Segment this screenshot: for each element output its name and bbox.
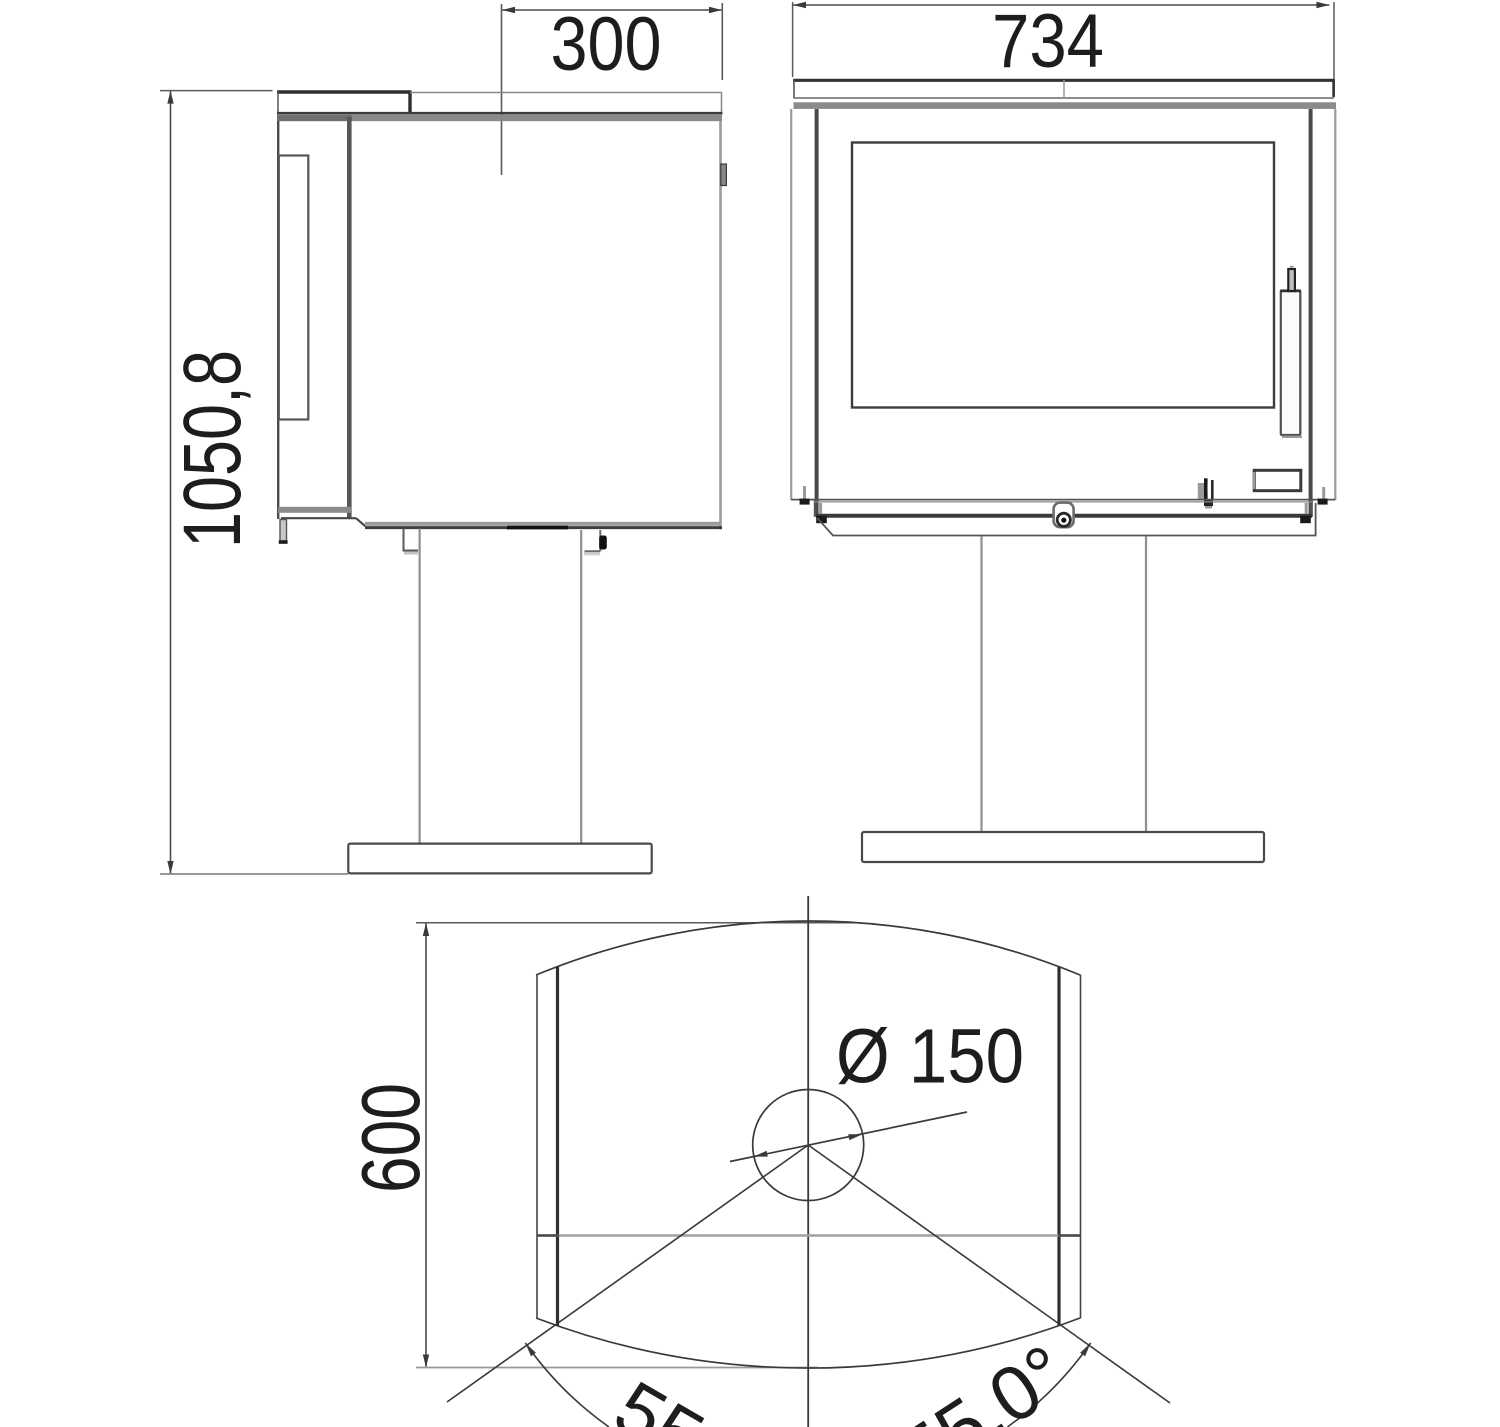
svg-text:1050,8: 1050,8 — [167, 350, 258, 548]
svg-text:600: 600 — [344, 1083, 437, 1193]
svg-text:734: 734 — [992, 0, 1104, 84]
svg-text:Ø 150: Ø 150 — [836, 1014, 1024, 1100]
svg-text:300: 300 — [551, 2, 662, 87]
